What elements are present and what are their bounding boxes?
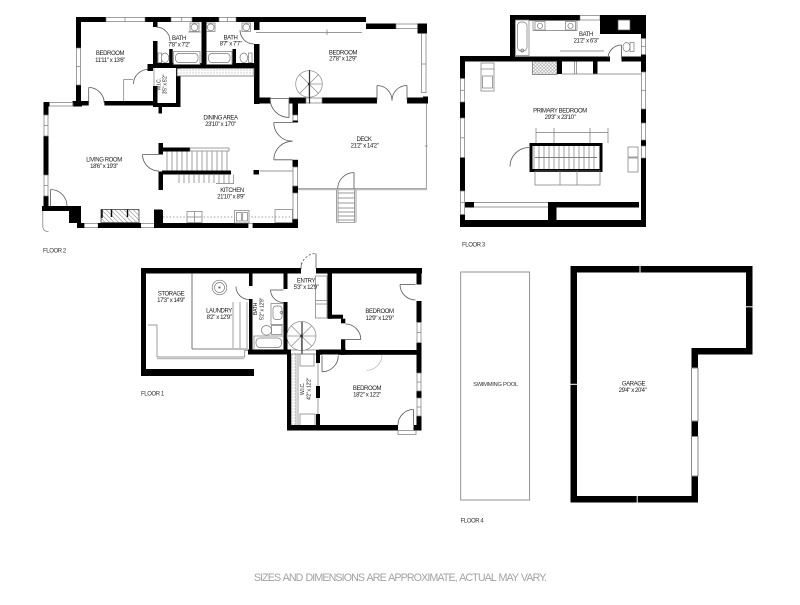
svg-text:29'3" x 23'10": 29'3" x 23'10"	[545, 115, 576, 121]
svg-text:11'11" x 13'6": 11'11" x 13'6"	[95, 58, 125, 64]
svg-text:5'2" x 12'9": 5'2" x 12'9"	[260, 298, 266, 320]
svg-text:4'2" x 12'2": 4'2" x 12'2"	[307, 378, 313, 400]
svg-text:5'3" x 12'9": 5'3" x 12'9"	[294, 285, 319, 291]
svg-text:BATH: BATH	[579, 32, 593, 38]
svg-text:DECK: DECK	[356, 137, 371, 143]
svg-text:STORAGE: STORAGE	[158, 292, 185, 298]
svg-text:FLOOR 1: FLOOR 1	[141, 392, 165, 398]
svg-text:KITCHEN: KITCHEN	[220, 188, 244, 194]
svg-text:7'8" x 7'2": 7'8" x 7'2"	[168, 43, 190, 49]
svg-text:GARAGE: GARAGE	[622, 381, 646, 387]
svg-text:BATH: BATH	[253, 302, 259, 315]
svg-text:17'3" x 14'9": 17'3" x 14'9"	[157, 298, 185, 304]
svg-text:FLOOR 4: FLOOR 4	[461, 519, 485, 525]
svg-text:FLOOR 3: FLOOR 3	[462, 243, 486, 249]
svg-text:PRIMARY BEDROOM: PRIMARY BEDROOM	[533, 109, 587, 115]
svg-text:FLOOR 2: FLOOR 2	[43, 249, 67, 255]
svg-text:29'4" x 20'4": 29'4" x 20'4"	[619, 388, 647, 394]
svg-text:DINING AREA: DINING AREA	[203, 116, 238, 122]
svg-text:8'2" x 12'9": 8'2" x 12'9"	[207, 315, 232, 321]
svg-text:21'2" x 14'2": 21'2" x 14'2"	[351, 144, 379, 150]
svg-text:18'6" x 19'3": 18'6" x 19'3"	[90, 164, 118, 170]
svg-text:SIZES AND DIMENSIONS ARE APPRO: SIZES AND DIMENSIONS ARE APPROXIMATE, AC…	[254, 572, 546, 584]
svg-text:LAUNDRY: LAUNDRY	[206, 309, 232, 315]
svg-text:BEDROOM: BEDROOM	[353, 386, 382, 392]
svg-text:21'10" x 8'9": 21'10" x 8'9"	[217, 195, 245, 201]
svg-text:23'10" x 17'0": 23'10" x 17'0"	[205, 122, 236, 128]
svg-text:LIVING ROOM: LIVING ROOM	[86, 158, 122, 164]
svg-text:BATH: BATH	[172, 36, 186, 42]
svg-text:12'9" x 12'9": 12'9" x 12'9"	[366, 316, 394, 322]
svg-text:3'5" x 5'2": 3'5" x 5'2"	[163, 74, 169, 94]
svg-text:SWIMMING POOL: SWIMMING POOL	[473, 382, 519, 388]
svg-text:ENTRY: ENTRY	[297, 279, 316, 285]
svg-text:21'2" x 6'3": 21'2" x 6'3"	[574, 39, 599, 45]
svg-text:8'7" x 7'7": 8'7" x 7'7"	[220, 42, 242, 48]
svg-text:18'2" x 12'2": 18'2" x 12'2"	[353, 393, 381, 399]
svg-text:27'8" x 12'9": 27'8" x 12'9"	[329, 57, 357, 63]
svg-text:BEDROOM: BEDROOM	[365, 309, 394, 315]
svg-text:BEDROOM: BEDROOM	[96, 51, 125, 57]
svg-text:W.I.C.: W.I.C.	[300, 383, 306, 395]
